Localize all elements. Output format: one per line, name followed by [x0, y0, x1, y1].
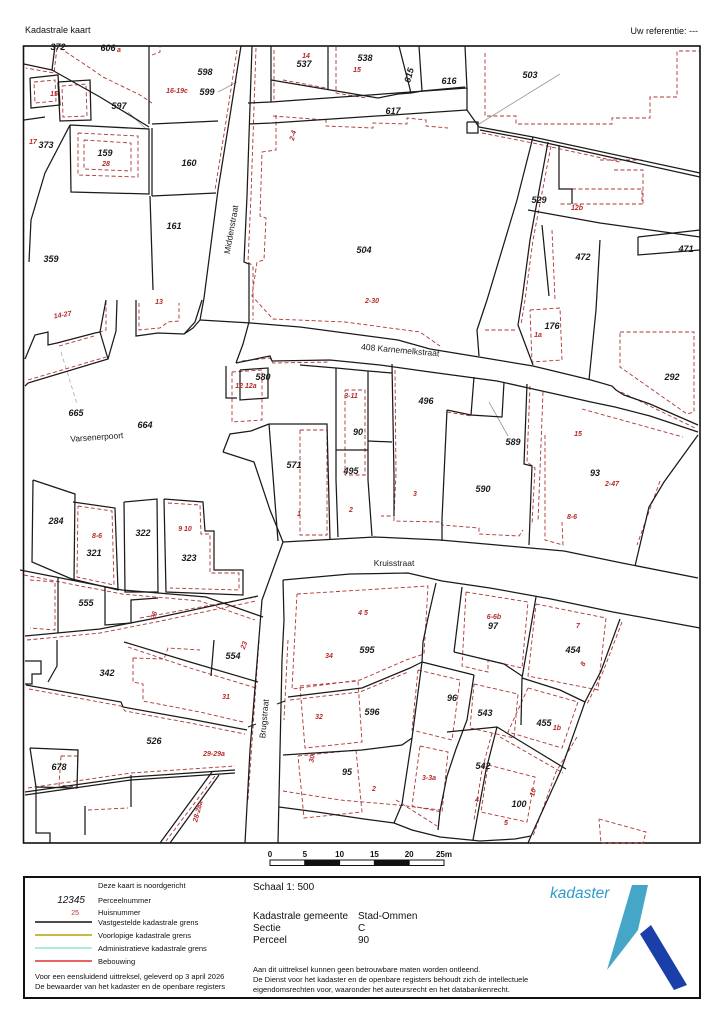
svg-text:2: 2 — [371, 786, 376, 793]
svg-text:2: 2 — [348, 507, 353, 514]
svg-text:529: 529 — [531, 195, 546, 205]
svg-text:28: 28 — [101, 161, 110, 168]
svg-text:Voorlopige kadastrale grens: Voorlopige kadastrale grens — [98, 931, 191, 940]
svg-text:161: 161 — [166, 221, 181, 231]
svg-text:8-6: 8-6 — [92, 533, 102, 540]
svg-text:15: 15 — [574, 431, 582, 438]
svg-text:160: 160 — [181, 158, 196, 168]
svg-text:495: 495 — [342, 466, 359, 476]
svg-text:321: 321 — [86, 548, 101, 558]
svg-text:159: 159 — [97, 148, 112, 158]
svg-text:176: 176 — [544, 321, 560, 331]
svg-text:Kruisstraat: Kruisstraat — [374, 558, 415, 568]
svg-text:537: 537 — [296, 59, 312, 69]
svg-text:595: 595 — [359, 645, 375, 655]
svg-text:3-3a: 3-3a — [422, 775, 436, 782]
svg-text:9 10: 9 10 — [178, 526, 192, 533]
svg-text:5: 5 — [303, 850, 308, 859]
svg-text:455: 455 — [535, 718, 552, 728]
svg-text:93: 93 — [590, 468, 600, 478]
svg-text:2-47: 2-47 — [604, 481, 620, 488]
svg-text:542: 542 — [475, 761, 490, 771]
svg-text:12b: 12b — [571, 205, 584, 212]
svg-text:15: 15 — [353, 67, 361, 74]
svg-text:Deze kaart is noordgericht: Deze kaart is noordgericht — [98, 881, 186, 890]
svg-text:Perceelnummer: Perceelnummer — [98, 896, 151, 905]
svg-text:95: 95 — [342, 767, 353, 777]
svg-text:25: 25 — [71, 910, 79, 917]
svg-text:323: 323 — [181, 553, 196, 563]
svg-text:eigendomsrechten voor, waarond: eigendomsrechten voor, waaronder het aut… — [253, 985, 510, 994]
svg-text:1b: 1b — [553, 725, 562, 732]
svg-text:15: 15 — [370, 850, 379, 859]
svg-text:31: 31 — [222, 694, 230, 701]
svg-text:6-6b: 6-6b — [487, 614, 502, 621]
svg-text:617: 617 — [385, 106, 401, 116]
svg-text:597: 597 — [111, 101, 127, 111]
svg-text:Sectie: Sectie — [253, 923, 281, 934]
svg-text:472: 472 — [574, 252, 590, 262]
svg-text:kadaster: kadaster — [550, 885, 610, 902]
svg-text:598: 598 — [197, 67, 212, 77]
svg-text:496: 496 — [417, 396, 434, 406]
svg-text:Bebouwing: Bebouwing — [98, 957, 135, 966]
svg-text:678: 678 — [51, 762, 66, 772]
svg-text:32: 32 — [315, 714, 323, 721]
svg-text:342: 342 — [99, 668, 114, 678]
svg-text:Aan dit uittreksel kunnen geen: Aan dit uittreksel kunnen geen betrouwba… — [253, 965, 480, 974]
svg-text:571: 571 — [286, 460, 301, 470]
svg-text:596: 596 — [364, 707, 380, 717]
svg-text:359: 359 — [43, 254, 58, 264]
svg-text:30: 30 — [308, 754, 316, 763]
svg-text:17: 17 — [29, 139, 38, 146]
svg-text:Uw referentie: ---: Uw referentie: --- — [630, 26, 698, 36]
svg-text:599: 599 — [199, 87, 214, 97]
svg-text:664: 664 — [137, 420, 152, 430]
svg-text:10: 10 — [335, 850, 344, 859]
svg-text:5: 5 — [504, 820, 508, 827]
svg-text:Kadastrale gemeente: Kadastrale gemeente — [253, 911, 349, 922]
svg-text:589: 589 — [505, 437, 520, 447]
svg-text:12 12a: 12 12a — [235, 383, 257, 390]
svg-text:34: 34 — [325, 653, 333, 660]
svg-text:90: 90 — [358, 935, 370, 946]
svg-text:554: 554 — [225, 651, 240, 661]
svg-text:15: 15 — [50, 91, 58, 98]
svg-text:De bewaarder van het kadaster: De bewaarder van het kadaster en de open… — [35, 982, 225, 991]
svg-text:616: 616 — [441, 76, 457, 86]
svg-text:471: 471 — [677, 244, 693, 254]
svg-text:20: 20 — [405, 850, 414, 859]
svg-text:454: 454 — [564, 645, 580, 655]
svg-text:538: 538 — [357, 53, 372, 63]
svg-text:Voor een eensluidend uittrekse: Voor een eensluidend uittreksel, gelever… — [35, 972, 224, 981]
svg-text:4 5: 4 5 — [357, 610, 368, 617]
svg-text:555: 555 — [78, 598, 94, 608]
svg-text:0: 0 — [268, 850, 273, 859]
svg-text:Kadastrale kaart: Kadastrale kaart — [25, 25, 91, 35]
svg-text:3-11: 3-11 — [344, 393, 358, 400]
svg-text:373: 373 — [38, 140, 53, 150]
svg-text:C: C — [358, 923, 365, 934]
svg-text:543: 543 — [477, 708, 492, 718]
svg-text:606: 606 — [100, 43, 116, 53]
svg-text:1: 1 — [297, 511, 301, 518]
svg-text:590: 590 — [475, 484, 490, 494]
svg-text:8-6: 8-6 — [567, 514, 577, 521]
svg-text:Huisnummer: Huisnummer — [98, 908, 141, 917]
svg-text:Administratieve kadastrale gre: Administratieve kadastrale grens — [98, 944, 207, 953]
svg-text:12345: 12345 — [57, 895, 85, 906]
svg-text:Stad-Ommen: Stad-Ommen — [358, 911, 417, 922]
svg-text:16-19c: 16-19c — [166, 88, 188, 95]
svg-text:100: 100 — [511, 799, 526, 809]
svg-text:De Dienst voor het kadaster en: De Dienst voor het kadaster en de openba… — [253, 975, 528, 984]
svg-text:96: 96 — [447, 693, 458, 703]
svg-text:504: 504 — [356, 245, 371, 255]
svg-text:Vastgestelde kadastrale grens: Vastgestelde kadastrale grens — [98, 918, 199, 927]
svg-text:580: 580 — [255, 372, 270, 382]
svg-text:a: a — [117, 47, 121, 54]
svg-text:1a: 1a — [534, 332, 542, 339]
svg-text:Schaal 1: 500: Schaal 1: 500 — [253, 882, 315, 893]
svg-text:97: 97 — [488, 621, 499, 631]
svg-text:292: 292 — [663, 372, 679, 382]
svg-text:665: 665 — [68, 408, 84, 418]
svg-text:25m: 25m — [436, 850, 452, 859]
svg-text:29-29a: 29-29a — [202, 751, 225, 758]
svg-text:4: 4 — [474, 797, 479, 804]
svg-text:3: 3 — [413, 491, 417, 498]
svg-text:13: 13 — [155, 299, 163, 306]
svg-text:284: 284 — [47, 516, 63, 526]
svg-text:526: 526 — [146, 736, 162, 746]
svg-text:Perceel: Perceel — [253, 935, 287, 946]
svg-text:90: 90 — [353, 427, 363, 437]
svg-text:322: 322 — [135, 528, 150, 538]
svg-text:14: 14 — [302, 53, 310, 60]
svg-text:372: 372 — [50, 42, 65, 52]
svg-text:2-30: 2-30 — [364, 298, 379, 305]
svg-text:503: 503 — [522, 70, 537, 80]
